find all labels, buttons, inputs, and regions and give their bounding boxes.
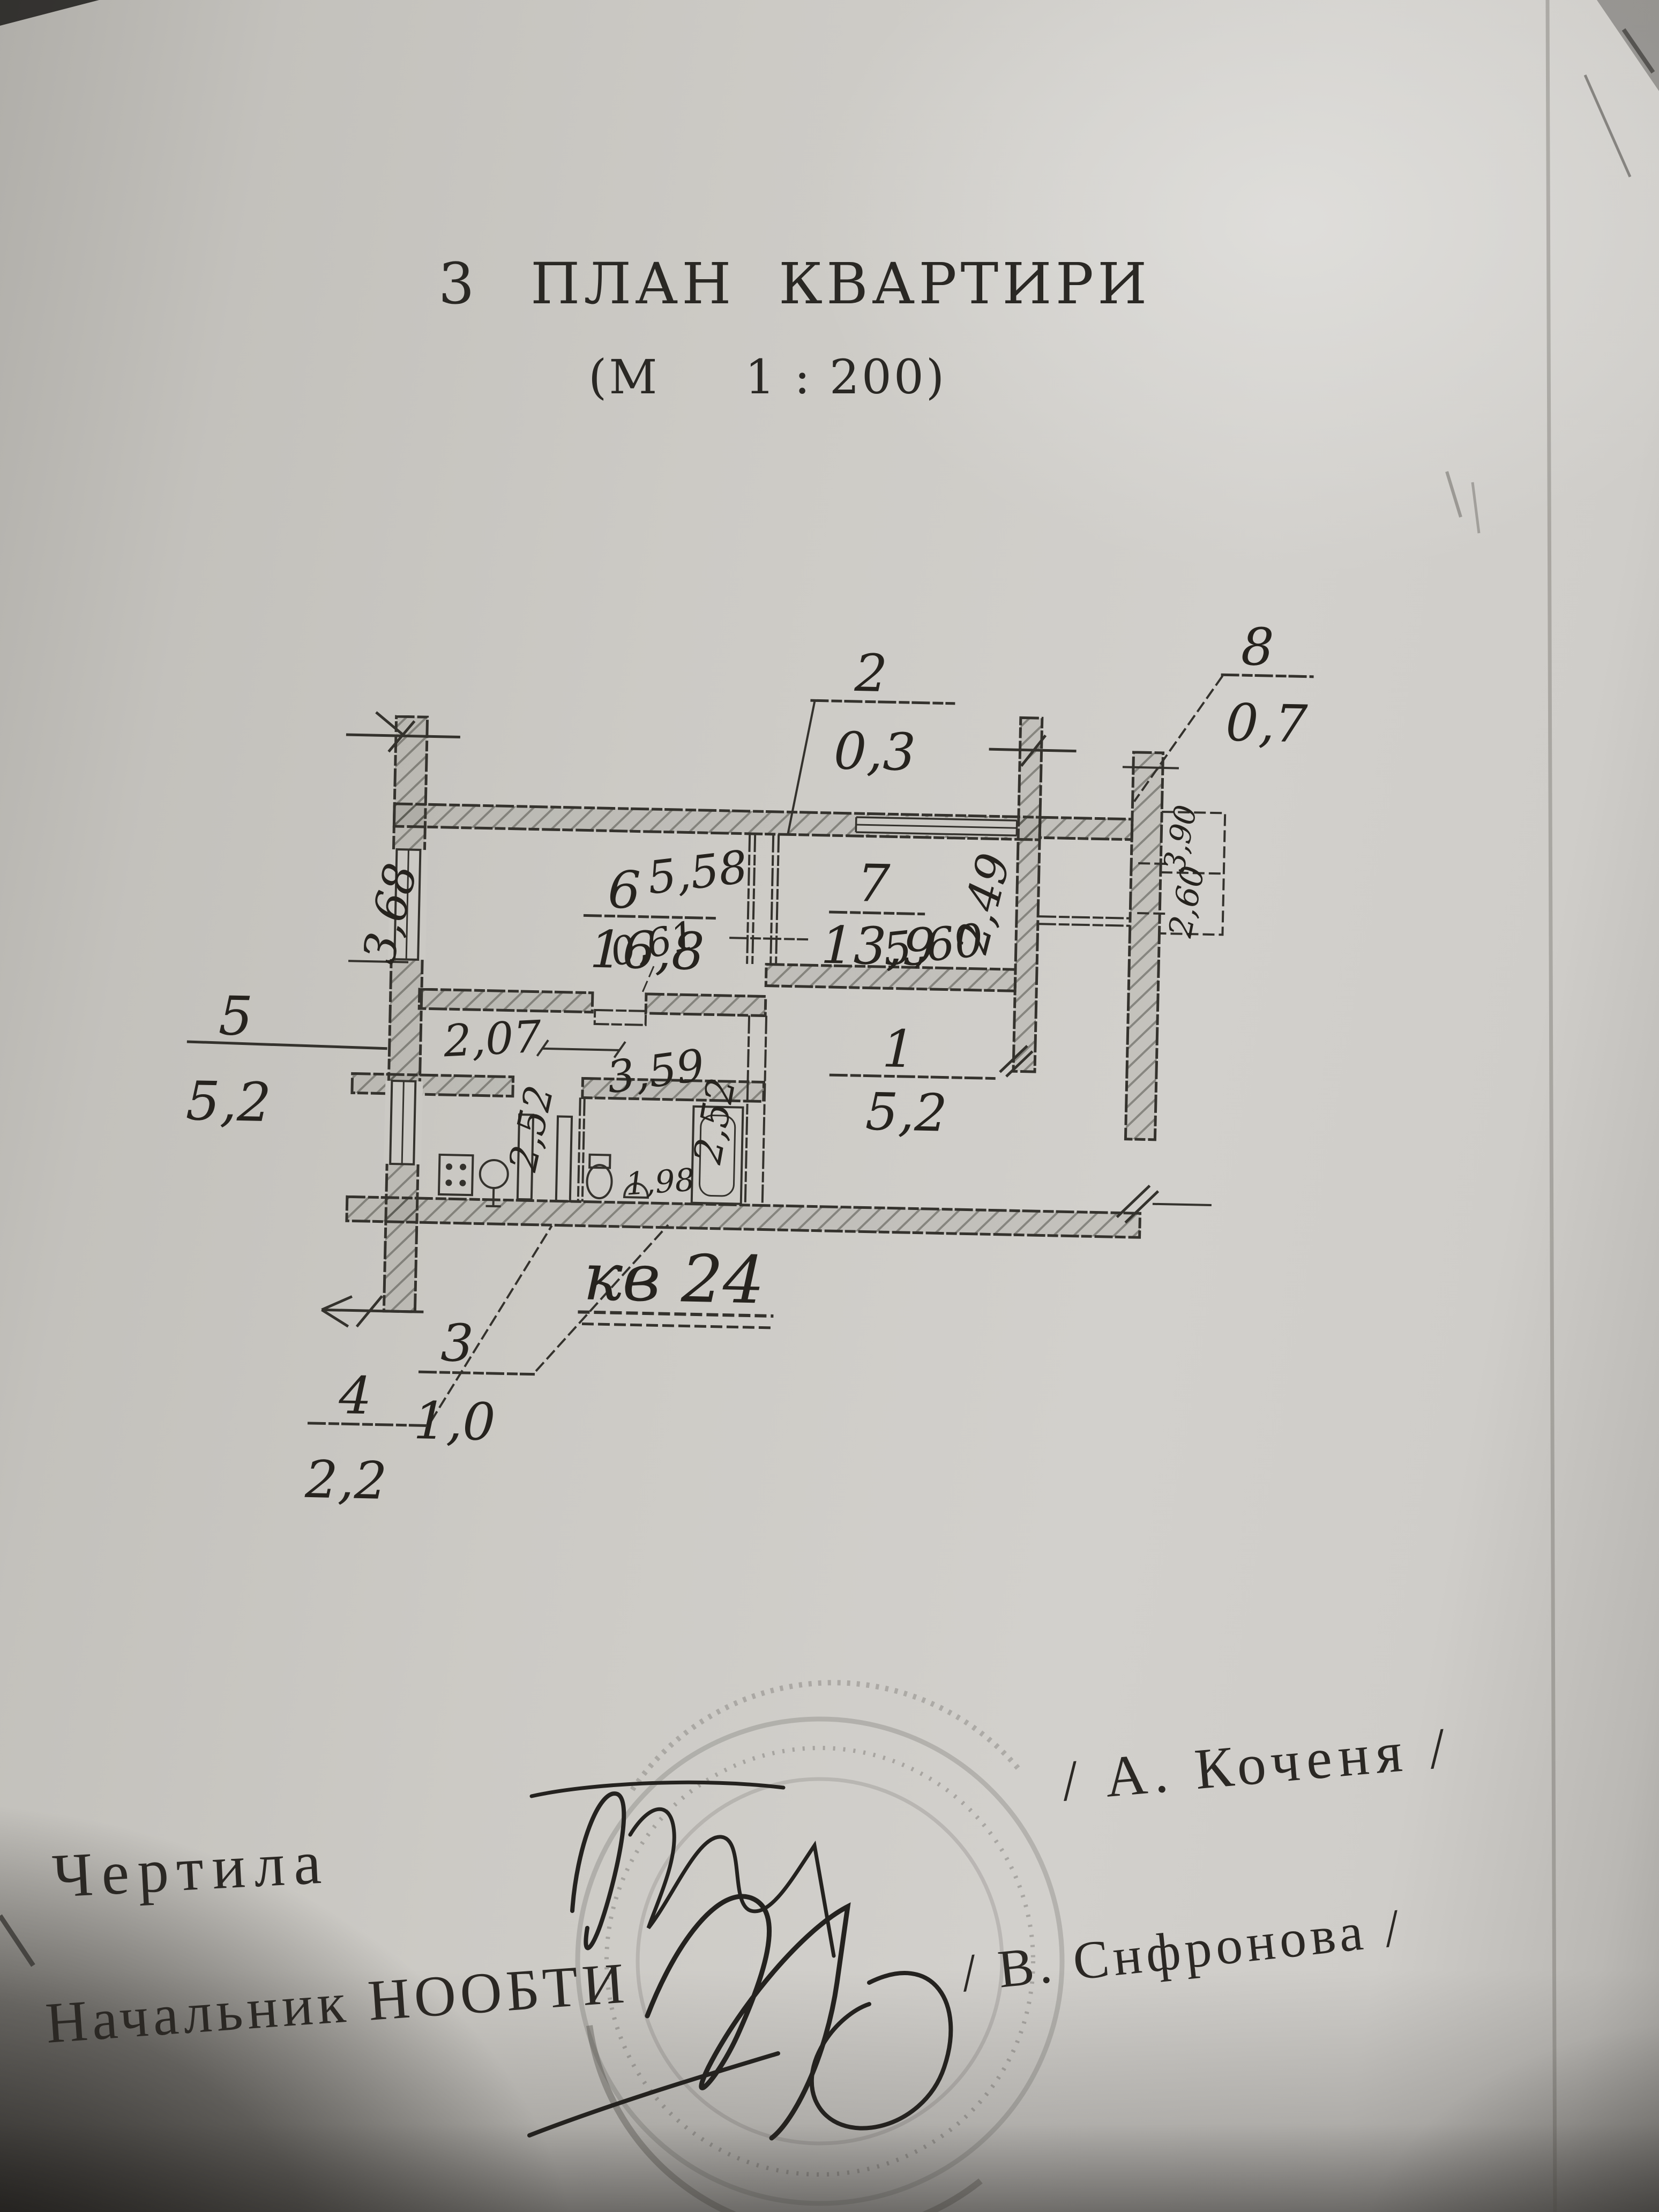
window-north-room7 xyxy=(856,816,1017,837)
room-7-underline xyxy=(829,912,925,914)
chief-name: / В. Снфронова / xyxy=(959,1897,1407,2003)
wall-kitchen-north-a xyxy=(352,1073,513,1096)
stamp-lower-arc xyxy=(589,2026,981,2212)
page-title: ПЛАН КВАРТИРИ xyxy=(530,251,1150,317)
dim-line-corridor xyxy=(542,1049,620,1050)
stamp-inner-circle xyxy=(638,1779,1002,2143)
stamp-upper-arc xyxy=(632,1683,1018,1790)
apartment-underline-2 xyxy=(582,1324,771,1328)
dim-balcony-a: 3,90 xyxy=(1157,802,1204,875)
arrow-se-b xyxy=(1125,1191,1158,1223)
drafted-name: / А. Коченя / xyxy=(1059,1716,1454,1813)
partition-bath-east-2 xyxy=(763,1016,766,1206)
callout-3-area: 1,0 xyxy=(413,1391,496,1452)
room-6-number: 6 xyxy=(607,860,641,920)
toilet-symbol xyxy=(587,1155,612,1199)
wall-north-extension xyxy=(1040,817,1132,840)
partition-closet-1 xyxy=(747,834,750,964)
floor-plan: 6 16,8 7 13,9 1 5,2 кв 24 2 0,3 8 0,7 5 … xyxy=(177,595,1315,1530)
callout-3-number: 3 xyxy=(440,1313,474,1373)
chief-label: Начальник НООБТИ xyxy=(43,1951,630,2056)
partition-closet-2 xyxy=(752,834,755,964)
scanned-page: 3 ПЛАН КВАРТИРИ (М 1 : 200) xyxy=(0,0,1659,2212)
pencil-smudge-1 xyxy=(1447,472,1461,517)
callout-2-underline xyxy=(810,700,955,704)
callout-3-underline xyxy=(419,1372,535,1374)
callout-8-underline xyxy=(1221,675,1314,677)
top-right-corner-shadow xyxy=(1597,0,1659,91)
dim-bath-w: 1,98 xyxy=(624,1161,696,1202)
room-1-area: 5,2 xyxy=(865,1082,948,1144)
fold-line xyxy=(1548,0,1555,2212)
dim-balcony-b: 2,60 xyxy=(1162,863,1213,941)
drafter-signature xyxy=(532,1782,834,1956)
tick-se xyxy=(1153,1204,1212,1205)
room-7-number: 7 xyxy=(857,853,891,914)
wall-east-inner xyxy=(1013,718,1042,1072)
window-west-2 xyxy=(384,1081,423,1164)
callout-2-area: 0,3 xyxy=(833,721,916,782)
partition-bath-west-1 xyxy=(578,1097,580,1201)
wall-east-outer xyxy=(1125,752,1163,1140)
callout-4-number: 4 xyxy=(338,1365,372,1426)
stove-symbol xyxy=(439,1155,473,1195)
callout-8-number: 8 xyxy=(1240,617,1274,677)
wall-room6-south-a xyxy=(419,989,593,1012)
callout-5-area: 5,2 xyxy=(185,1070,272,1134)
partition-bath-west-2 xyxy=(582,1098,585,1202)
apartment-number: кв 24 xyxy=(582,1239,765,1319)
drafted-label: Чертила xyxy=(51,1828,331,1911)
scale-label: (М 1 : 200) xyxy=(588,349,946,405)
drawing-svg: 3 ПЛАН КВАРТИРИ (М 1 : 200) xyxy=(0,0,1659,2212)
dim-corridor-a: 2,07 xyxy=(442,1012,543,1067)
tick-closet xyxy=(729,938,808,939)
room-1-underline xyxy=(829,1075,996,1078)
partition-closet-3 xyxy=(771,834,773,965)
partition-closet-4 xyxy=(776,834,779,965)
title-block: 3 ПЛАН КВАРТИРИ (М 1 : 200) xyxy=(438,251,1150,405)
dim-room6-top: 5,58 xyxy=(645,840,750,904)
edge-slash-mark xyxy=(0,1916,33,1966)
title-number: 3 xyxy=(438,251,476,317)
wall-south xyxy=(347,1197,1140,1237)
room-6-underline xyxy=(584,915,716,918)
callout-4-underline xyxy=(308,1423,430,1426)
partition-bath-east-1 xyxy=(745,1015,749,1205)
tick-outer-top xyxy=(1123,767,1179,768)
callout-2-number: 2 xyxy=(854,643,888,704)
loggia-line-1 xyxy=(1038,916,1130,918)
arrow-west-bottom-a xyxy=(322,1296,352,1310)
dim-room7-right: 2,49 xyxy=(945,848,1021,959)
callout-8-area: 0,7 xyxy=(1225,692,1308,754)
arrow-west-bottom-b xyxy=(322,1310,349,1326)
loggia-line-2 xyxy=(1038,924,1130,926)
wall-room6-south-b xyxy=(646,994,766,1016)
door-leaf-bath xyxy=(556,1116,572,1201)
room-1-number: 1 xyxy=(881,1019,915,1079)
leader-callout-5 xyxy=(187,1042,387,1049)
callout-4-area: 2,2 xyxy=(304,1449,387,1511)
crease-mark-1 xyxy=(1585,75,1630,177)
callout-5-number: 5 xyxy=(218,984,253,1048)
top-left-corner-shadow xyxy=(0,0,99,26)
pencil-smudge-2 xyxy=(1473,482,1479,533)
door-leaf-corridor xyxy=(595,1010,646,1025)
leader-callout-8 xyxy=(1134,674,1223,803)
